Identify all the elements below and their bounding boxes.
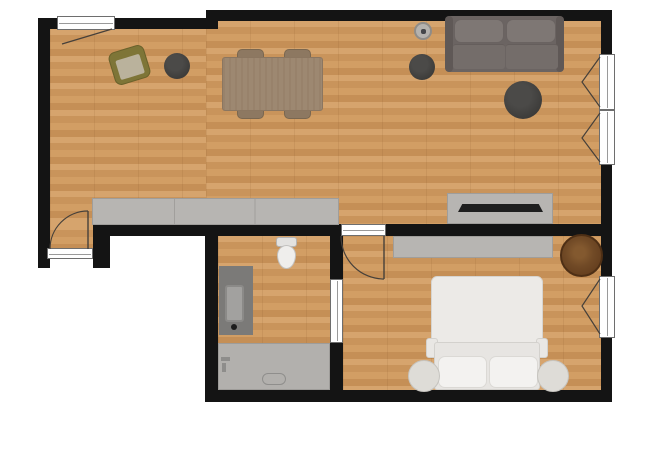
planter[interactable] <box>414 22 432 40</box>
bed-pillow-left <box>438 356 487 388</box>
armchair-seat-cushion <box>115 54 145 80</box>
bed-duvet[interactable] <box>431 276 543 344</box>
entrance-door-threshold[interactable] <box>47 248 93 259</box>
bathtub-faucet-icon <box>221 357 230 361</box>
top-window[interactable] <box>57 16 115 30</box>
wardrobe[interactable] <box>393 236 553 258</box>
round-side-table[interactable] <box>560 234 603 277</box>
sofa-armrest-left <box>445 16 453 72</box>
vanity-drain-dot <box>231 324 237 330</box>
floor-plan-canvas <box>0 0 650 450</box>
wall-bathroom-left <box>205 236 218 402</box>
dining-table[interactable] <box>222 57 323 111</box>
planter-core <box>421 29 426 34</box>
sofa-back-pillow <box>454 19 504 43</box>
sofa-back-pillow <box>506 19 556 43</box>
floor-cushion-large[interactable] <box>504 81 542 119</box>
sofa[interactable] <box>445 16 564 72</box>
floor-cushion-small-2[interactable] <box>409 54 435 80</box>
bed-pillow-right <box>489 356 538 388</box>
bedroom-door-threshold[interactable] <box>341 224 386 236</box>
bedroom-window[interactable] <box>599 276 615 338</box>
wall-entrance-nook-right <box>93 224 110 268</box>
kitchen-sideboard[interactable] <box>92 198 339 225</box>
wall-left <box>38 18 50 268</box>
right-window-lower[interactable] <box>599 110 615 165</box>
bedside-stool-right[interactable] <box>537 360 569 392</box>
bathroom-sliding-door[interactable] <box>330 279 343 343</box>
sofa-seat-cushion <box>453 44 505 69</box>
right-window-upper[interactable] <box>599 54 615 110</box>
sink <box>225 285 244 322</box>
bathtub-faucet-icon <box>222 363 226 372</box>
sofa-seat-cushion <box>506 44 558 69</box>
tv <box>458 204 543 212</box>
bedside-stool-left[interactable] <box>408 360 440 392</box>
floor-entrance-nook <box>50 224 93 250</box>
floor-cushion-small-1[interactable] <box>164 53 190 79</box>
bathtub-headrest <box>262 373 286 385</box>
